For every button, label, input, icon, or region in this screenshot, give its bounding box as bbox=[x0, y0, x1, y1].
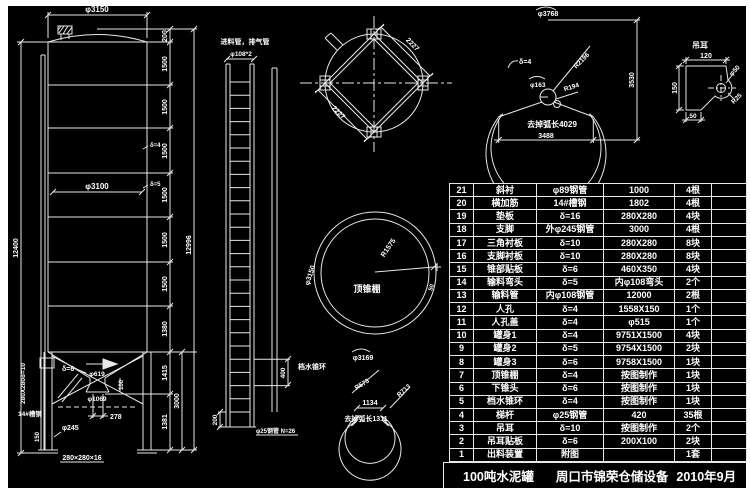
tank-elevation bbox=[38, 26, 157, 453]
parts-row: 16支脚衬板δ=10280X2808块 bbox=[450, 250, 747, 263]
dev-height: 3530 bbox=[629, 72, 636, 88]
parts-row: 8罐身3δ=69758X15001块 bbox=[450, 356, 747, 369]
parts-cell: 按图制作 bbox=[604, 369, 675, 382]
lug-w: 120 bbox=[700, 53, 712, 60]
parts-cell: 19 bbox=[450, 210, 474, 223]
dim-outlet-bottom: φ1069 bbox=[87, 396, 106, 403]
parts-row: 17三角衬板δ=10280X2808块 bbox=[450, 236, 747, 249]
parts-cell: 支脚 bbox=[474, 223, 537, 236]
parts-cell: 1套 bbox=[675, 448, 712, 461]
parts-row: 13输料管内φ108钢管120002根 bbox=[450, 289, 747, 302]
parts-row: 1出料装置附图1套 bbox=[450, 448, 747, 461]
parts-cell: 4根 bbox=[675, 197, 712, 210]
dev-cut-note: 去掉弧长4029 bbox=[527, 119, 577, 129]
parts-row: 12人孔δ=41558X1501个 bbox=[450, 303, 747, 316]
seg-2: 1500 bbox=[162, 99, 169, 115]
parts-row: 5档水锥环δ=4按图制作1块 bbox=[450, 395, 747, 408]
parts-cell bbox=[712, 223, 747, 236]
parts-cell: 1块 bbox=[675, 356, 712, 369]
parts-cell: 内φ108弯头 bbox=[604, 276, 675, 289]
parts-cell: 1块 bbox=[675, 395, 712, 408]
callout-t6: δ=6 bbox=[62, 366, 74, 373]
parts-cell: 200X100 bbox=[604, 435, 675, 448]
parts-cell: δ=6 bbox=[537, 382, 604, 395]
dim-rung-spacing: 400 bbox=[280, 367, 287, 378]
parts-cell: δ=4 bbox=[537, 316, 604, 329]
parts-cell bbox=[712, 342, 747, 355]
cad-canvas[interactable]: φ3150 φ3100 δ=4 δ=5 δ=6 12400 bbox=[8, 6, 746, 488]
parts-table: 21斜衬φ89钢管10004根20横加筋14#槽钢18024根19垫板δ=162… bbox=[449, 183, 747, 462]
roof-cone-label: 顶锥棚 bbox=[353, 283, 380, 294]
parts-cell: 按图制作 bbox=[604, 395, 675, 408]
title-product: 100吨水泥罐 bbox=[463, 466, 534, 485]
parts-cell bbox=[712, 303, 747, 316]
parts-cell: 7 bbox=[450, 369, 474, 382]
parts-cell: 1块 bbox=[675, 369, 712, 382]
plan-view bbox=[300, 16, 452, 152]
parts-cell: 35根 bbox=[675, 408, 712, 421]
note-rungs: φ25钢管 N=26 bbox=[256, 427, 296, 435]
parts-cell: 档水锥环 bbox=[474, 395, 537, 408]
parts-cell: 9 bbox=[450, 342, 474, 355]
parts-cell bbox=[712, 236, 747, 249]
parts-cell: δ=10 bbox=[537, 236, 604, 249]
parts-cell: 4根 bbox=[675, 184, 712, 197]
note-channel: 14#槽钢 bbox=[18, 409, 42, 418]
parts-cell: 11 bbox=[450, 316, 474, 329]
dev-thk: δ=4 bbox=[519, 59, 531, 66]
dim-cone-h: 1415 bbox=[162, 365, 169, 381]
parts-cell: 12000 bbox=[604, 289, 675, 302]
parts-cell: 4块 bbox=[675, 210, 712, 223]
parts-cell: 21 bbox=[450, 184, 474, 197]
parts-cell: 1558X150 bbox=[604, 303, 675, 316]
parts-cell: 15 bbox=[450, 263, 474, 276]
parts-cell: φ515 bbox=[604, 316, 675, 329]
title-date: 2010年9月 bbox=[676, 466, 736, 485]
parts-cell: 5 bbox=[450, 395, 474, 408]
parts-cell: 顶锥棚 bbox=[474, 369, 537, 382]
title-company: 周口市锦荣仓储设备 bbox=[556, 466, 669, 485]
parts-cell: 2个 bbox=[675, 276, 712, 289]
parts-cell: 9754X1500 bbox=[604, 342, 675, 355]
parts-cell bbox=[712, 356, 747, 369]
parts-cell: 1802 bbox=[604, 197, 675, 210]
parts-row: 11人孔盖δ=4φ5151个 bbox=[450, 316, 747, 329]
parts-cell: 人孔 bbox=[474, 303, 537, 316]
parts-cell: δ=4 bbox=[537, 395, 604, 408]
parts-cell: 人孔盖 bbox=[474, 316, 537, 329]
parts-cell: 2 bbox=[450, 435, 474, 448]
ladder-title: 进料管，排气管 bbox=[221, 37, 270, 46]
parts-cell bbox=[712, 395, 747, 408]
parts-row: 9罐身2δ=59754X15002块 bbox=[450, 342, 747, 355]
parts-cell: 2个 bbox=[675, 422, 712, 435]
parts-cell: 罐身1 bbox=[474, 329, 537, 342]
parts-row: 18支脚外φ245钢管30004根 bbox=[450, 223, 747, 236]
ladder-detail: 进料管，排气管 φ108*2 400 bbox=[212, 37, 298, 435]
parts-cell: 4块 bbox=[675, 329, 712, 342]
ring-r2: R713 bbox=[396, 383, 413, 399]
dim-leg-h: 3000 bbox=[174, 393, 181, 409]
parts-cell: 17 bbox=[450, 236, 474, 249]
dim-ladder-bottom: 200 bbox=[212, 414, 219, 425]
parts-cell: 4块 bbox=[675, 263, 712, 276]
parts-cell: 8 bbox=[450, 356, 474, 369]
parts-cell: φ25钢管 bbox=[537, 408, 604, 421]
seg-5: 1500 bbox=[162, 232, 169, 248]
dim-dia-body: φ3100 bbox=[85, 182, 109, 191]
seg-1: 1500 bbox=[162, 56, 169, 72]
parts-cell: δ=6 bbox=[537, 263, 604, 276]
parts-cell: 3 bbox=[450, 422, 474, 435]
dim-outlet-top: φ619 bbox=[89, 371, 105, 378]
parts-cell: 输料管 bbox=[474, 289, 537, 302]
parts-cell: 下锥头 bbox=[474, 382, 537, 395]
parts-row: 15锥部贴板δ=6460X3504块 bbox=[450, 263, 747, 276]
parts-cell: 内φ108钢管 bbox=[537, 289, 604, 302]
dim-foot-h: 150 bbox=[35, 431, 41, 442]
parts-cell: 外φ245钢管 bbox=[537, 223, 604, 236]
parts-cell: 9751X1500 bbox=[604, 329, 675, 342]
roof-cone-radius: R1575 bbox=[380, 238, 398, 259]
roof-cone-plan: 顶锥棚 R1575 φ3150 50 bbox=[304, 212, 441, 334]
parts-row: 2吊耳贴板δ=6200X1002块 bbox=[450, 435, 747, 448]
parts-cell: 18 bbox=[450, 223, 474, 236]
parts-cell: 吊耳 bbox=[474, 422, 537, 435]
parts-cell bbox=[712, 250, 747, 263]
callout-t5: δ=5 bbox=[150, 182, 161, 188]
lug-hole: φ50 bbox=[728, 64, 742, 78]
parts-row: 19垫板δ=16280X2804块 bbox=[450, 210, 747, 223]
ring-width: 1134 bbox=[362, 400, 377, 407]
parts-cell bbox=[712, 184, 747, 197]
parts-table-body: 21斜衬φ89钢管10004根20横加筋14#槽钢18024根19垫板δ=162… bbox=[450, 184, 747, 462]
parts-cell: 出料装置 bbox=[474, 448, 537, 461]
lug-h: 150 bbox=[672, 82, 679, 94]
parts-cell: 20 bbox=[450, 197, 474, 210]
parts-cell: 14 bbox=[450, 276, 474, 289]
parts-row: 21斜衬φ89钢管10004根 bbox=[450, 184, 747, 197]
parts-cell: 斜衬 bbox=[474, 184, 537, 197]
parts-cell bbox=[712, 422, 747, 435]
parts-cell: δ=10 bbox=[537, 250, 604, 263]
parts-cell: 按图制作 bbox=[604, 422, 675, 435]
dim-dia-top: φ3150 bbox=[85, 5, 109, 14]
parts-cell bbox=[604, 448, 675, 461]
parts-cell: 罐身3 bbox=[474, 356, 537, 369]
parts-cell: 13 bbox=[450, 289, 474, 302]
parts-cell: 锥部贴板 bbox=[474, 263, 537, 276]
parts-cell: 三角衬板 bbox=[474, 236, 537, 249]
dim-height-total: 12996 bbox=[186, 235, 193, 255]
parts-cell: 垫板 bbox=[474, 210, 537, 223]
parts-cell: 按图制作 bbox=[604, 382, 675, 395]
parts-cell: 1 bbox=[450, 448, 474, 461]
dev-arc-dia: φ3768 bbox=[538, 11, 559, 18]
parts-cell: 280X280 bbox=[604, 236, 675, 249]
parts-cell: 附图 bbox=[537, 448, 604, 461]
parts-cell: 8块 bbox=[675, 250, 712, 263]
parts-row: 4梯杆φ25钢管42035根 bbox=[450, 408, 747, 421]
parts-cell bbox=[712, 435, 747, 448]
dim-leg-dia: φ245 bbox=[62, 425, 79, 432]
parts-row: 14输料弯头δ=5内φ108弯头2个 bbox=[450, 276, 747, 289]
parts-cell bbox=[712, 210, 747, 223]
parts-cell: 6 bbox=[450, 382, 474, 395]
parts-cell bbox=[712, 408, 747, 421]
parts-cell: 2块 bbox=[675, 342, 712, 355]
parts-cell: δ=4 bbox=[537, 329, 604, 342]
parts-cell: 罐身2 bbox=[474, 342, 537, 355]
parts-cell: 1块 bbox=[675, 382, 712, 395]
dev-hub-dia: φ163 bbox=[530, 82, 546, 89]
lug-r: R25 bbox=[730, 92, 744, 106]
ring-cut-note: 去掉弧长1311 bbox=[344, 414, 387, 423]
parts-cell: 横加筋 bbox=[474, 197, 537, 210]
parts-cell bbox=[712, 276, 747, 289]
dev-width: 3488 bbox=[538, 133, 554, 140]
parts-cell: 9758X1500 bbox=[604, 356, 675, 369]
dim-offset: 278 bbox=[110, 414, 122, 421]
parts-cell: 420 bbox=[604, 408, 675, 421]
parts-cell: 8块 bbox=[675, 236, 712, 249]
parts-cell: 4 bbox=[450, 408, 474, 421]
ring-arc-dia: φ3169 bbox=[353, 355, 374, 362]
parts-cell bbox=[712, 263, 747, 276]
parts-cell: 3000 bbox=[604, 223, 675, 236]
ladder-pipe-spec: φ108*2 bbox=[230, 51, 252, 58]
water-ring-detail: φ3169 档水锥环 R573 R713 1134 去掉弧长1311 bbox=[297, 349, 412, 480]
parts-cell: 10 bbox=[450, 329, 474, 342]
parts-cell: 输料弯头 bbox=[474, 276, 537, 289]
parts-cell: φ89钢管 bbox=[537, 184, 604, 197]
dev-r2: R2196 bbox=[573, 51, 592, 70]
seg-0: 200 bbox=[162, 30, 169, 42]
note-base-plate: 280×280×16 bbox=[62, 455, 101, 462]
ring-label: 档水锥环 bbox=[297, 362, 326, 371]
parts-cell: 2根 bbox=[675, 289, 712, 302]
parts-cell: δ=4 bbox=[537, 369, 604, 382]
ladder-rungs bbox=[230, 82, 250, 412]
parts-cell: δ=10 bbox=[537, 422, 604, 435]
parts-cell: δ=4 bbox=[537, 303, 604, 316]
parts-cell: δ=5 bbox=[537, 342, 604, 355]
parts-cell: 280X280 bbox=[604, 210, 675, 223]
dim-lower-h: 1381 bbox=[162, 414, 169, 430]
cad-page: φ3150 φ3100 δ=4 δ=5 δ=6 12400 bbox=[0, 0, 750, 494]
parts-row: 6下锥头δ=6按图制作1块 bbox=[450, 382, 747, 395]
parts-row: 20横加筋14#槽钢18024根 bbox=[450, 197, 747, 210]
parts-row: 10罐身1δ=49751X15004块 bbox=[450, 329, 747, 342]
parts-cell bbox=[712, 329, 747, 342]
parts-row: 7顶锥棚δ=4按图制作1块 bbox=[450, 369, 747, 382]
lug-t: 50 bbox=[689, 113, 697, 120]
parts-cell: 14#槽钢 bbox=[537, 197, 604, 210]
plan-dim-ne: 2227 bbox=[404, 37, 420, 53]
parts-cell: 支脚衬板 bbox=[474, 250, 537, 263]
parts-cell: 吊耳贴板 bbox=[474, 435, 537, 448]
parts-cell bbox=[712, 382, 747, 395]
lug-label: 吊耳 bbox=[692, 41, 708, 50]
parts-cell: 4根 bbox=[675, 223, 712, 236]
parts-cell bbox=[712, 289, 747, 302]
parts-cell: δ=16 bbox=[537, 210, 604, 223]
parts-cell: 1000 bbox=[604, 184, 675, 197]
parts-cell: 280X280 bbox=[604, 250, 675, 263]
plan-dim-sw: 2227 bbox=[330, 105, 346, 121]
parts-cell: 1个 bbox=[675, 316, 712, 329]
seg-7: 1380 bbox=[162, 321, 169, 337]
parts-row: 3吊耳δ=10按图制作2个 bbox=[450, 422, 747, 435]
seg-6: 1500 bbox=[162, 276, 169, 292]
note-pad: 280X280δ=10 bbox=[20, 363, 27, 404]
parts-cell bbox=[712, 316, 747, 329]
parts-cell: δ=6 bbox=[537, 356, 604, 369]
parts-cell: 1个 bbox=[675, 303, 712, 316]
parts-cell: δ=6 bbox=[537, 435, 604, 448]
parts-cell: 460X350 bbox=[604, 263, 675, 276]
parts-cell: 2块 bbox=[675, 435, 712, 448]
seg-3: 1500 bbox=[162, 143, 169, 159]
parts-cell: δ=5 bbox=[537, 276, 604, 289]
parts-cell bbox=[712, 369, 747, 382]
parts-cell: 梯杆 bbox=[474, 408, 537, 421]
parts-cell bbox=[712, 448, 747, 461]
seg-4: 1500 bbox=[162, 187, 169, 203]
parts-cell: 16 bbox=[450, 250, 474, 263]
dim-height-left: 12400 bbox=[13, 238, 20, 258]
lug-detail: 吊耳 120 150 50 φ50 R25 bbox=[672, 41, 744, 123]
title-bar: 100吨水泥罐 周口市锦荣仓储设备 2010年9月 bbox=[443, 462, 746, 488]
parts-cell bbox=[712, 197, 747, 210]
parts-cell: 12 bbox=[450, 303, 474, 316]
callout-t4: δ=4 bbox=[150, 143, 161, 149]
